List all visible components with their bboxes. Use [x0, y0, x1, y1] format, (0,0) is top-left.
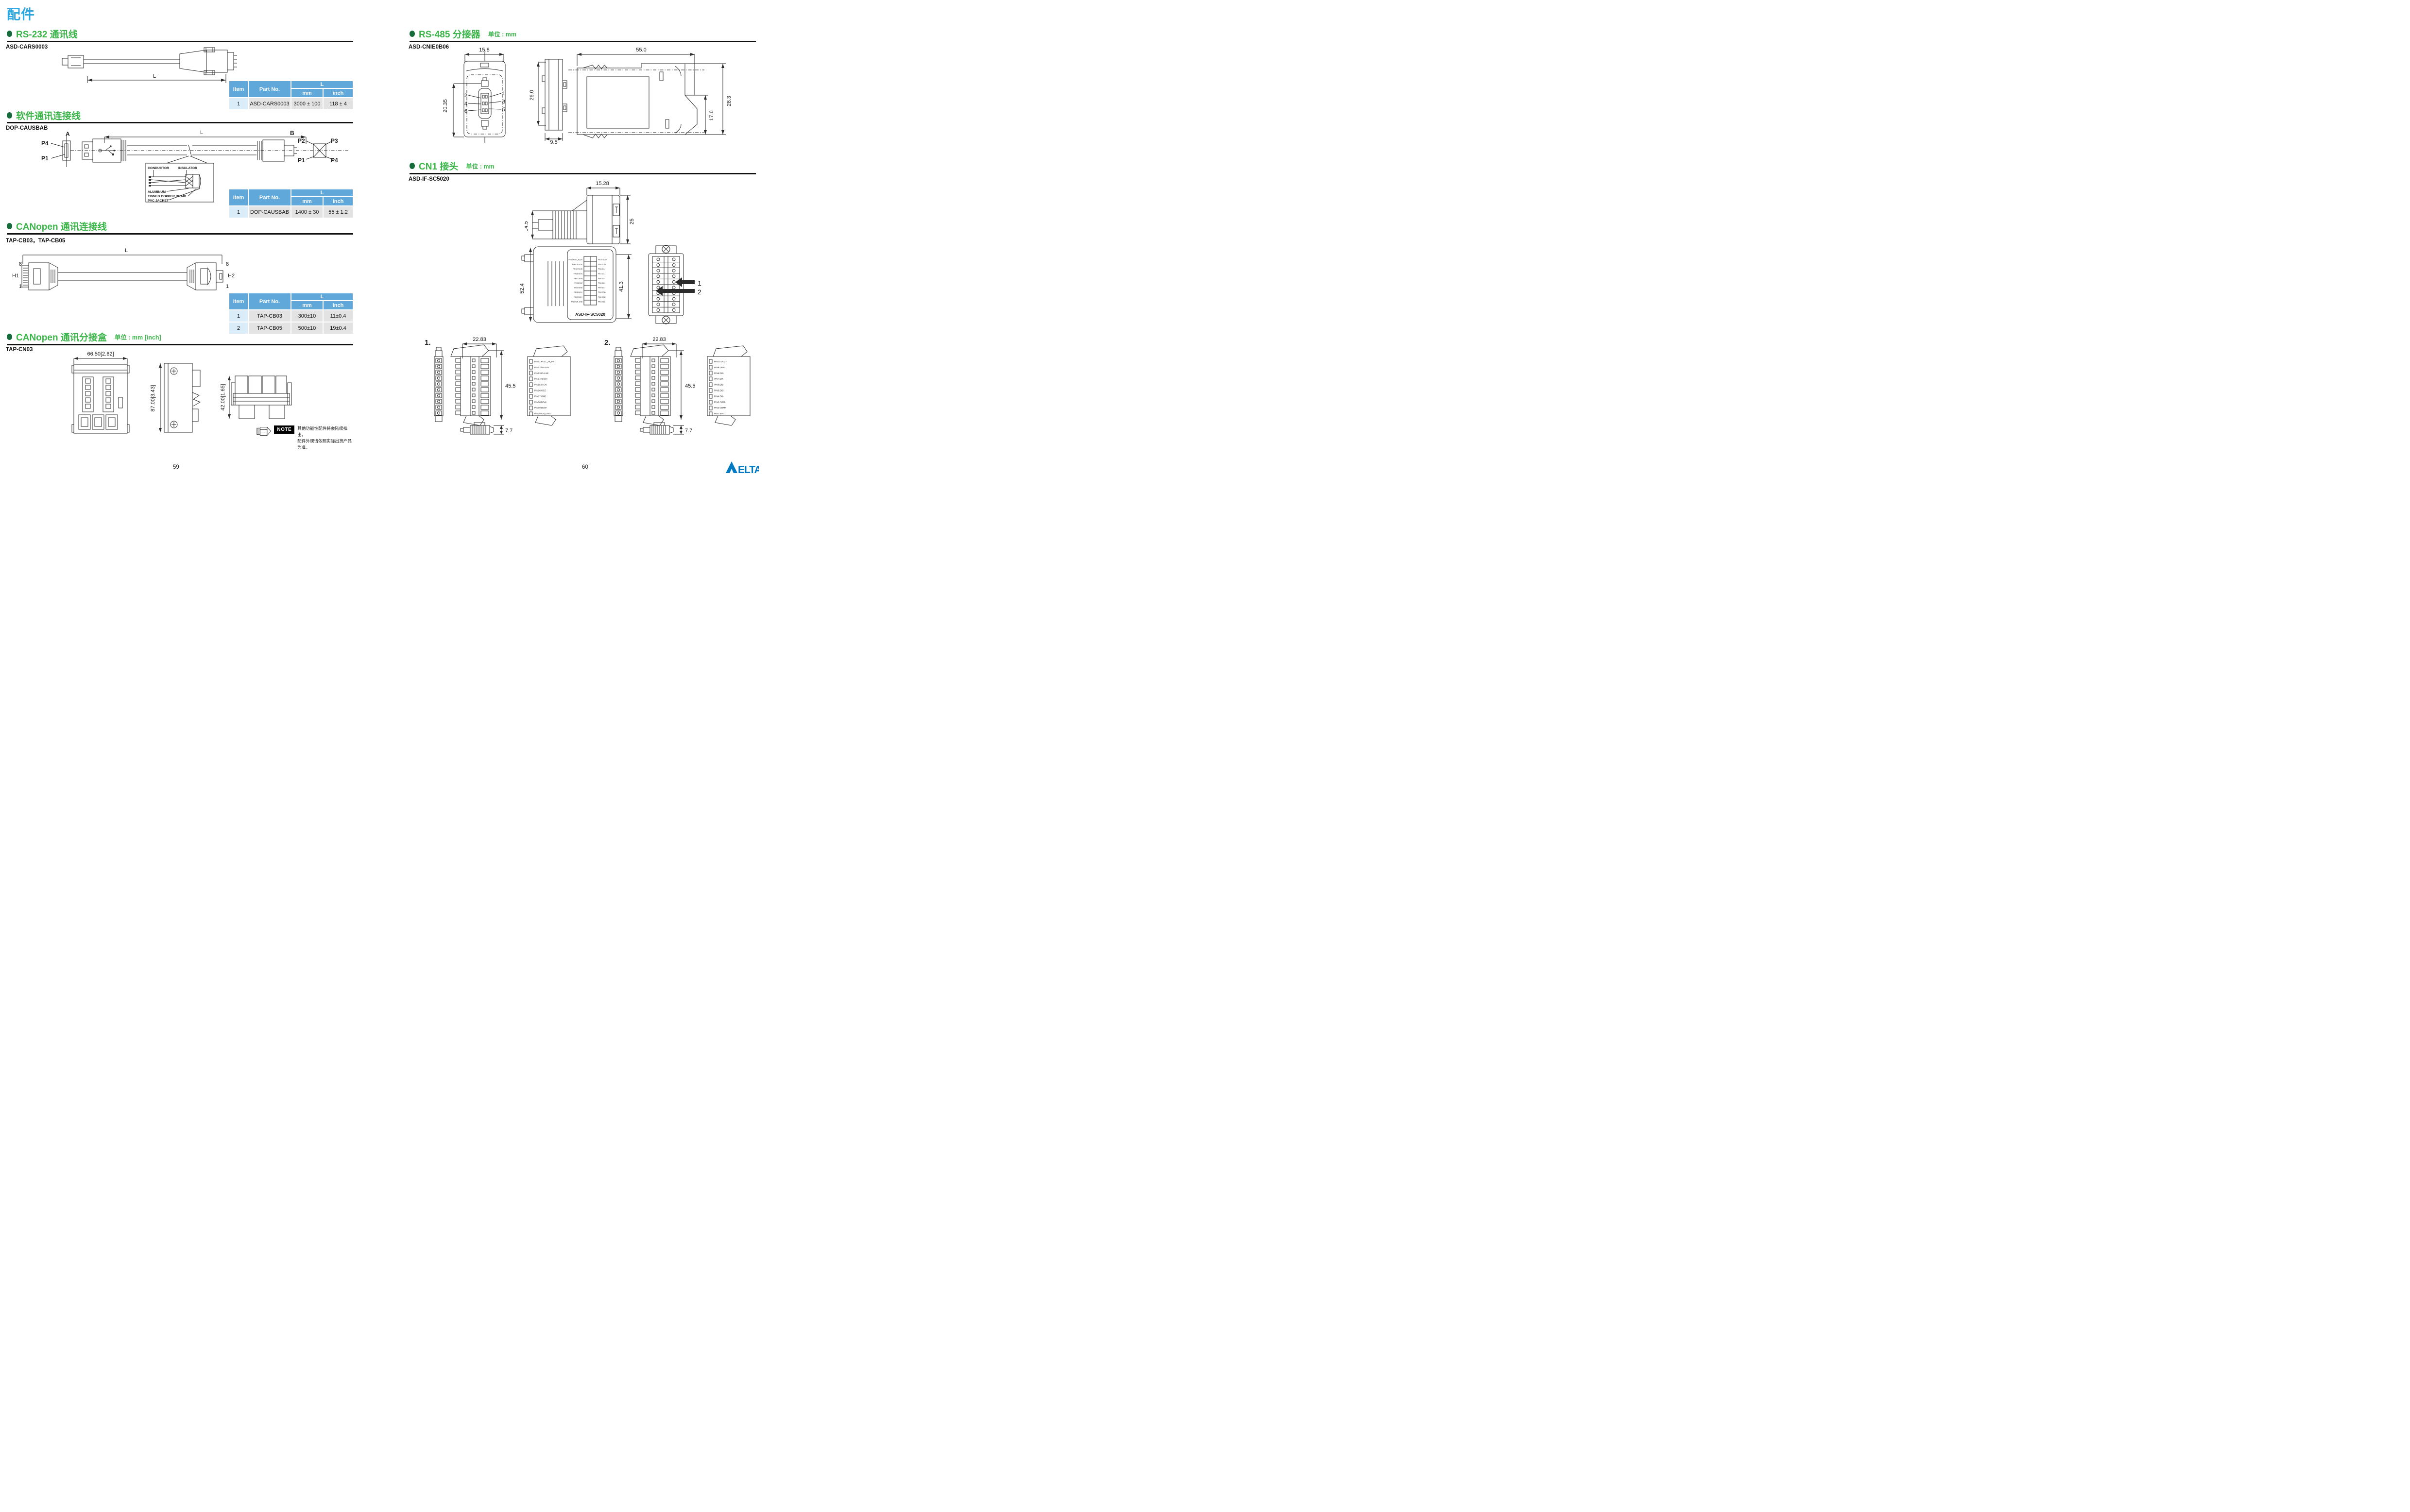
figure-label: 2.: [604, 339, 611, 347]
dim-15-28: 15.28: [596, 181, 609, 187]
bullet-icon: [7, 112, 12, 119]
cn1-figure-2: 2. 22.83: [601, 334, 762, 443]
svg-text:PIN15:SIGN: PIN15:SIGN: [574, 277, 582, 279]
svg-text:PIN17:GND: PIN17:GND: [534, 395, 547, 397]
section-rule: [7, 344, 353, 345]
note-block: NOTE 其他功能性配件将会陆续推出。 配件外观请依照实际出货产品为准。: [256, 425, 354, 451]
dim-22-83: 22.83: [473, 337, 486, 342]
dim-depth: 42.00[1.65]: [220, 384, 226, 410]
dim-28-3: 28.3: [726, 96, 732, 106]
col-part: Part No.: [249, 81, 291, 97]
table-row: 1 TAP-CB03 300±10 11±0.4: [229, 310, 353, 322]
part-number: ASD-CARS0003: [6, 44, 48, 50]
unit-label: 单位 : mm [inch]: [115, 332, 161, 341]
dim-45-5: 45.5: [685, 383, 695, 389]
svg-text:PIN11:PULL_HI_PS: PIN11:PULL_HI_PS: [569, 259, 582, 261]
canopen-table: Item Part No. L mm inch 1 TAP-CB03 300±1…: [228, 292, 354, 335]
dim-7-7: 7.7: [505, 428, 513, 434]
section-rule: [7, 233, 353, 235]
bullet-icon: [410, 163, 415, 169]
page-title: 配件: [7, 4, 35, 23]
cn1-top-drawing: 15.28 14.5 25: [525, 181, 641, 248]
pin1-left: 1: [19, 284, 22, 289]
manual-spread: 配件 RS-232 通讯线 ASD-CARS0003 L Item Part N…: [0, 0, 762, 478]
pin-p4b-label: P4: [331, 157, 338, 164]
svg-text:PIN20:CN_GND: PIN20:CN_GND: [571, 301, 583, 303]
page-number-right: 60: [582, 464, 588, 470]
jacket-label: PVC JACKET: [148, 199, 169, 203]
bullet-icon: [7, 31, 12, 37]
aluminum-label: ALUMINUM: [148, 190, 166, 194]
conductor-label: CONDUCTOR: [148, 167, 169, 170]
dim-22-83: 22.83: [652, 337, 666, 342]
unit-label: 单位 : mm: [488, 29, 516, 38]
dim-l-label: L: [200, 130, 203, 136]
section-cn1-header: CN1 接头 单位 : mm: [410, 159, 495, 172]
braid-label: TINNED COPPER BRAID: [148, 195, 186, 198]
svg-text:PIN1:VDD: PIN1:VDD: [598, 301, 605, 303]
bullet-icon: [7, 223, 12, 229]
dim-25: 25: [629, 219, 635, 224]
svg-text:PIN14:/SIGN: PIN14:/SIGN: [574, 273, 583, 275]
note-badge: NOTE: [274, 425, 294, 434]
svg-text:PIN20:CN_GND: PIN20:CN_GND: [534, 412, 551, 415]
delta-logo: ELTA: [725, 459, 759, 476]
svg-text:PIN5:DI2-: PIN5:DI2-: [714, 390, 724, 392]
col-l: L: [291, 81, 353, 88]
end-a-label: A: [66, 131, 70, 137]
dim-height: 87.00[3.43]: [150, 385, 156, 411]
pin-2: 2: [464, 93, 467, 99]
dim-55-0: 55.0: [636, 47, 646, 53]
section-title: 软件通讯连接线: [16, 109, 81, 122]
rs485-drawing: 15.8 2 4 6 1 3 5 20.35 26.0: [432, 47, 759, 148]
svg-text:PIN18:DO4+: PIN18:DO4+: [574, 291, 582, 293]
part-number: TAP-CB03，TAP-CB05: [6, 237, 65, 244]
part-number: ASD-IF-SC5020: [409, 176, 449, 182]
svg-text:PIN2:COM+: PIN2:COM+: [598, 296, 606, 298]
section-rule: [7, 41, 353, 42]
dim-l-label: L: [125, 248, 128, 254]
svg-text:PIN10:DO2+: PIN10:DO2+: [714, 360, 727, 363]
dim-14-5: 14.5: [525, 221, 529, 231]
dim-26-0: 26.0: [529, 90, 535, 100]
dim-15-8: 15.8: [479, 47, 489, 53]
section-rs485-header: RS-485 分接器 单位 : mm: [410, 27, 516, 40]
pin-p4-label: P4: [41, 140, 49, 147]
pin-3: 3: [502, 99, 505, 105]
col-mm: mm: [291, 89, 323, 97]
dim-9-5: 9.5: [550, 139, 557, 145]
svg-text:PIN10:DO2+: PIN10:DO2+: [598, 259, 607, 261]
svg-text:PIN7:DI4-: PIN7:DI4-: [714, 378, 724, 380]
svg-text:PIN13:PULSE: PIN13:PULSE: [573, 268, 582, 270]
dim-l-label: L: [153, 73, 156, 79]
svg-text:PIN19:DO3+: PIN19:DO3+: [574, 296, 582, 298]
pin-5: 5: [502, 107, 505, 113]
h1-label: H1: [12, 273, 19, 279]
svg-text:PIN6:DI3-: PIN6:DI3-: [714, 384, 724, 386]
svg-text:PIN4:DI1-: PIN4:DI1-: [598, 287, 605, 289]
pin1-right: 1: [226, 284, 229, 289]
dim-45-5: 45.5: [505, 383, 515, 389]
dim-width: 66.50[2.62]: [87, 351, 114, 357]
h2-label: H2: [228, 273, 235, 279]
svg-text:PIN8:DI7-: PIN8:DI7-: [598, 268, 605, 270]
pin-p3-label: P3: [331, 137, 338, 144]
pin-4: 4: [464, 101, 467, 107]
section-title: CANopen 通讯连接线: [16, 220, 107, 233]
pin-p1b-label: P1: [298, 157, 305, 164]
pencil-icon: [256, 425, 271, 437]
svg-text:PIN12:/PULSE: PIN12:/PULSE: [572, 264, 582, 266]
section-canopen-cable-header: CANopen 通讯连接线: [7, 220, 107, 233]
svg-text:PIN12:/PULSE: PIN12:/PULSE: [534, 366, 549, 369]
bullet-icon: [410, 31, 415, 37]
svg-text:PIN1:VDD: PIN1:VDD: [714, 412, 725, 415]
pin8-right: 8: [226, 261, 229, 267]
section-title: CN1 接头: [419, 159, 458, 172]
dim-20-35: 20.35: [443, 99, 448, 113]
part-number: TAP-CN03: [6, 347, 33, 353]
svg-text:PIN4:DI1-: PIN4:DI1-: [714, 395, 724, 397]
svg-text:PIN13:PULSE: PIN13:PULSE: [534, 372, 548, 374]
svg-text:PIN7:DI4-: PIN7:DI4-: [598, 273, 605, 275]
svg-text:PIN9:DO1+: PIN9:DO1+: [598, 264, 606, 266]
cn1-figure-1: 1. 22.83: [422, 334, 587, 443]
section-canopen-tap-header: CANopen 通讯分接盒 单位 : mm [inch]: [7, 330, 161, 343]
svg-text:PIN15:SIGN: PIN15:SIGN: [534, 384, 547, 386]
pin-p2-label: P2: [298, 137, 305, 144]
mid-part-label: ASD-IF-SC5020: [575, 312, 605, 317]
svg-text:PIN16:OCZ: PIN16:OCZ: [575, 282, 583, 284]
svg-text:PIN9:DO1+: PIN9:DO1+: [714, 366, 726, 369]
svg-text:PIN6:DI3-: PIN6:DI3-: [598, 277, 605, 279]
note-text: 其他功能性配件将会陆续推出。 配件外观请依照实际出货产品为准。: [297, 425, 354, 451]
canopen-cable-drawing: L 8 H1 1 8 H2 1: [12, 245, 255, 296]
svg-text:PIN3:COM-: PIN3:COM-: [714, 401, 726, 403]
table-row: 2 TAP-CB05 500±10 19±0.4: [229, 323, 353, 334]
svg-text:PIN2:COM+: PIN2:COM+: [714, 407, 726, 409]
svg-text:PIN14:/SIGN: PIN14:/SIGN: [534, 378, 547, 380]
rs232-cable-drawing: L: [58, 47, 250, 85]
pin-p1-label: P1: [41, 155, 49, 162]
svg-text:PIN3:COM-: PIN3:COM-: [598, 291, 606, 293]
section-title: CANopen 通讯分接盒: [16, 330, 107, 343]
dim-17-6: 17.6: [709, 110, 715, 120]
pin8-left: 8: [19, 261, 22, 267]
dim-41-3: 41.3: [618, 281, 624, 291]
col-item: Item: [229, 81, 248, 97]
section-rs232-header: RS-232 通讯线: [7, 27, 78, 40]
software-table: Item Part No. L mm inch 1 DOP-CAUSBAB 14…: [228, 188, 354, 219]
figure-label: 1.: [425, 339, 431, 347]
svg-text:PIN18:DO4+: PIN18:DO4+: [534, 401, 547, 403]
svg-text:PIN17:GND: PIN17:GND: [574, 287, 583, 289]
section-title: RS-232 通讯线: [16, 27, 78, 40]
insulator-label: INSULATOR: [178, 167, 197, 170]
svg-text:PIN16:OCZ: PIN16:OCZ: [534, 390, 546, 392]
svg-text:PIN5:DI2-: PIN5:DI2-: [598, 282, 605, 284]
table-row: 1 ASD-CARS0003 3000 ± 100 118 ± 4: [229, 98, 353, 109]
section-title: RS-485 分接器: [419, 27, 480, 40]
unit-label: 单位 : mm: [466, 161, 494, 170]
dim-7-7: 7.7: [685, 428, 692, 434]
cn1-mid-drawing: 52.4 PIN11:PULL_HI_PS PIN12:/PULSE PIN13…: [510, 242, 719, 329]
svg-text:PIN11:PULL_HI_PS: PIN11:PULL_HI_PS: [534, 360, 554, 363]
svg-text:PIN19:DO3+: PIN19:DO3+: [534, 407, 547, 409]
pin-6: 6: [464, 108, 467, 114]
arrow-2-label: 2: [698, 288, 701, 296]
table-row: 1 DOP-CAUSBAB 1400 ± 30 55 ± 1.2: [229, 206, 353, 218]
section-rule: [410, 173, 756, 174]
page-number-left: 59: [173, 464, 179, 470]
section-rule: [7, 122, 353, 123]
pin-1: 1: [502, 91, 505, 97]
col-inch: inch: [324, 89, 353, 97]
logo-text: ELTA: [738, 464, 759, 476]
section-software-header: 软件通讯连接线: [7, 109, 81, 122]
section-rule: [410, 41, 756, 42]
rs232-table: Item Part No. L mm inch 1 ASD-CARS0003 3…: [228, 80, 354, 110]
end-b-label: B: [290, 130, 294, 136]
bullet-icon: [7, 334, 12, 340]
arrow-1-label: 1: [698, 279, 701, 287]
svg-text:PIN8:DI7-: PIN8:DI7-: [714, 372, 724, 374]
dim-52-4: 52.4: [519, 283, 525, 293]
